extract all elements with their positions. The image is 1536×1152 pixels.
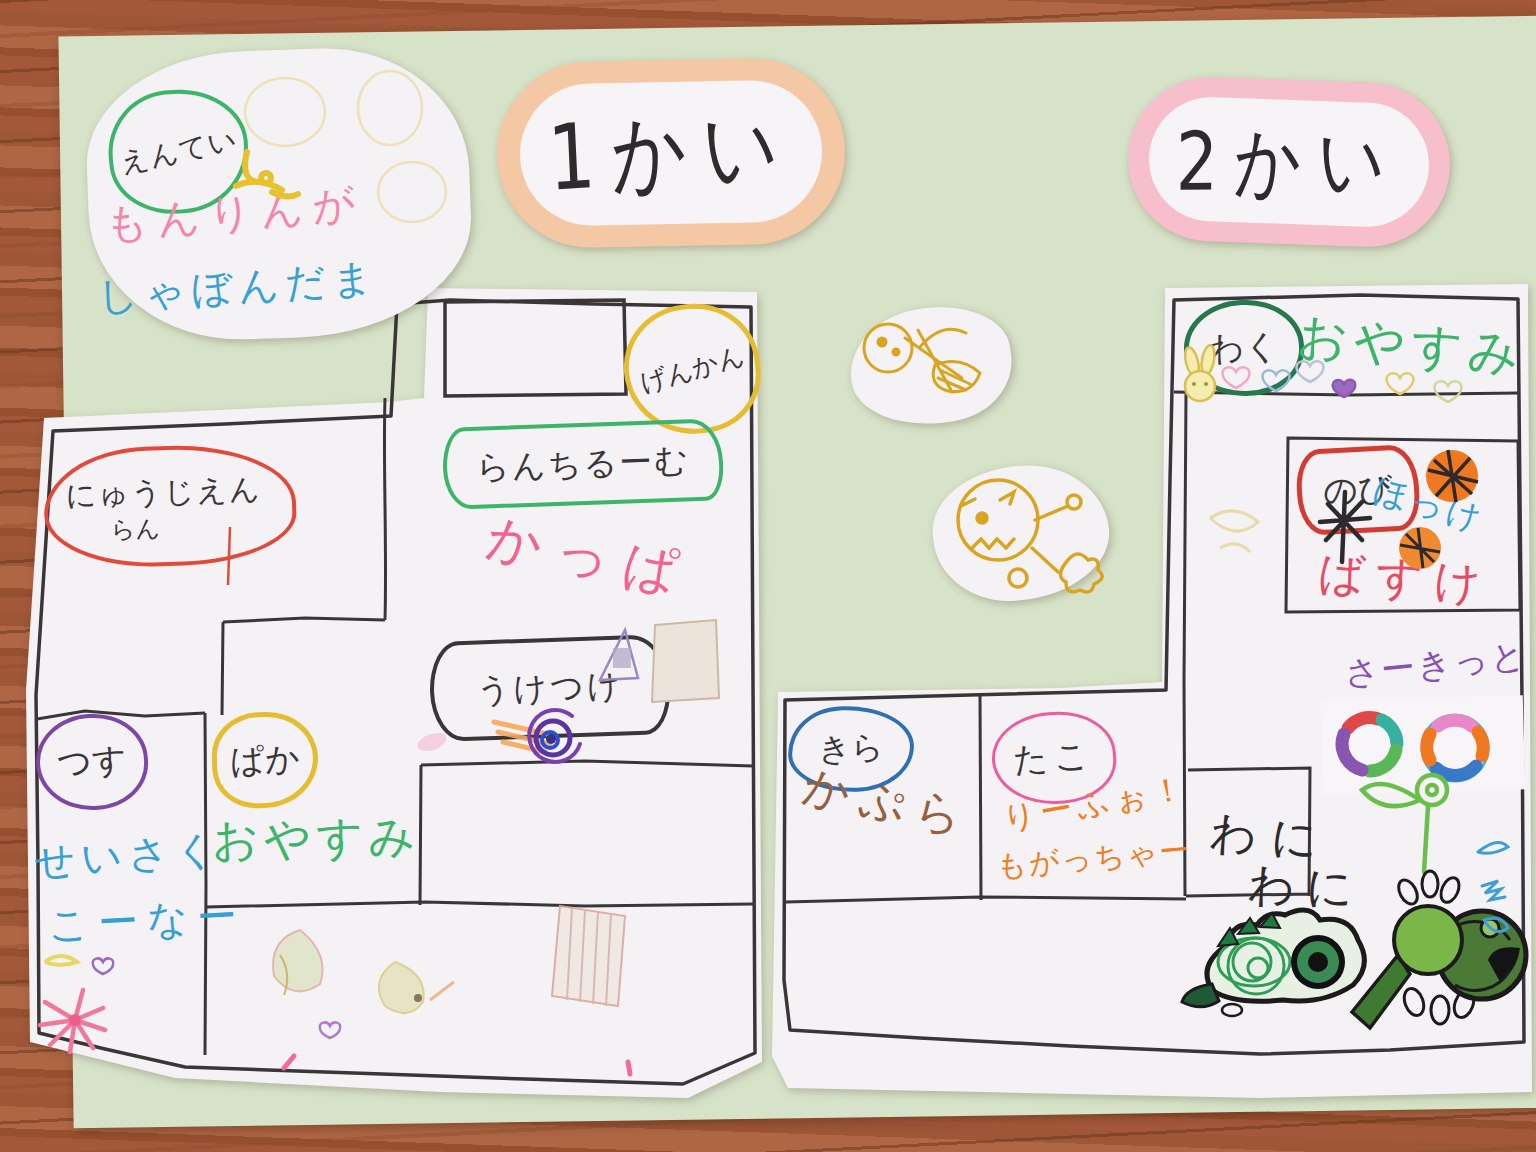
floor2-label-basuke: ばすけ	[1316, 542, 1494, 616]
floor2-kira-tako-divider	[980, 695, 981, 900]
nyuujien-label: にゅうじえん	[65, 469, 263, 517]
tsusu-label: つす	[56, 737, 128, 787]
floor2-title: 2かい	[1176, 106, 1402, 218]
tako-label: たこ	[1012, 732, 1097, 784]
uketsuke-label: うけつけ	[476, 663, 625, 713]
genkan-label: げんかん	[636, 338, 748, 401]
entrance-badge-label: えんてい	[116, 121, 240, 183]
floor2-label-wani-bottom: わに	[1247, 854, 1365, 920]
waku-label: わく	[1208, 324, 1279, 372]
floor1-title: 1かい	[545, 85, 797, 222]
paka-label: ぱか	[229, 736, 300, 784]
floor1-plaque-paper: 1かい	[518, 80, 823, 227]
entrance-note-paper: えんてい もんりんが しゃぼんだま	[83, 43, 475, 344]
floor2-center-wall	[1184, 394, 1186, 896]
nyuujien-sub-label: らん	[110, 512, 160, 546]
floor1-label-oyasumi: おやすみ	[211, 806, 420, 872]
floor1-room-uketsuke: うけつけ	[428, 634, 671, 742]
floor1-wall-a	[384, 398, 385, 620]
floor1-wall-e	[205, 713, 206, 1055]
poster-photo: えんてい もんりんが しゃぼんだま 1かい 2かい げんかん らんちるーむ かっ…	[0, 0, 1536, 1152]
floor2-plaque-paper: 2かい	[1147, 95, 1431, 229]
floor1-plaque: 1かい	[495, 57, 846, 249]
floor1-wall-c	[222, 622, 223, 715]
rings-strip-paper	[1321, 695, 1525, 794]
floor2-plaque: 2かい	[1125, 74, 1453, 249]
floor1-room-lunchroom: らんちるーむ	[442, 418, 725, 510]
floor1-label-seisaku-2: こーなー	[47, 888, 247, 953]
lunchroom-label: らんちるーむ	[475, 438, 690, 490]
entrance-blue-text: しゃぼんだま	[96, 250, 381, 325]
